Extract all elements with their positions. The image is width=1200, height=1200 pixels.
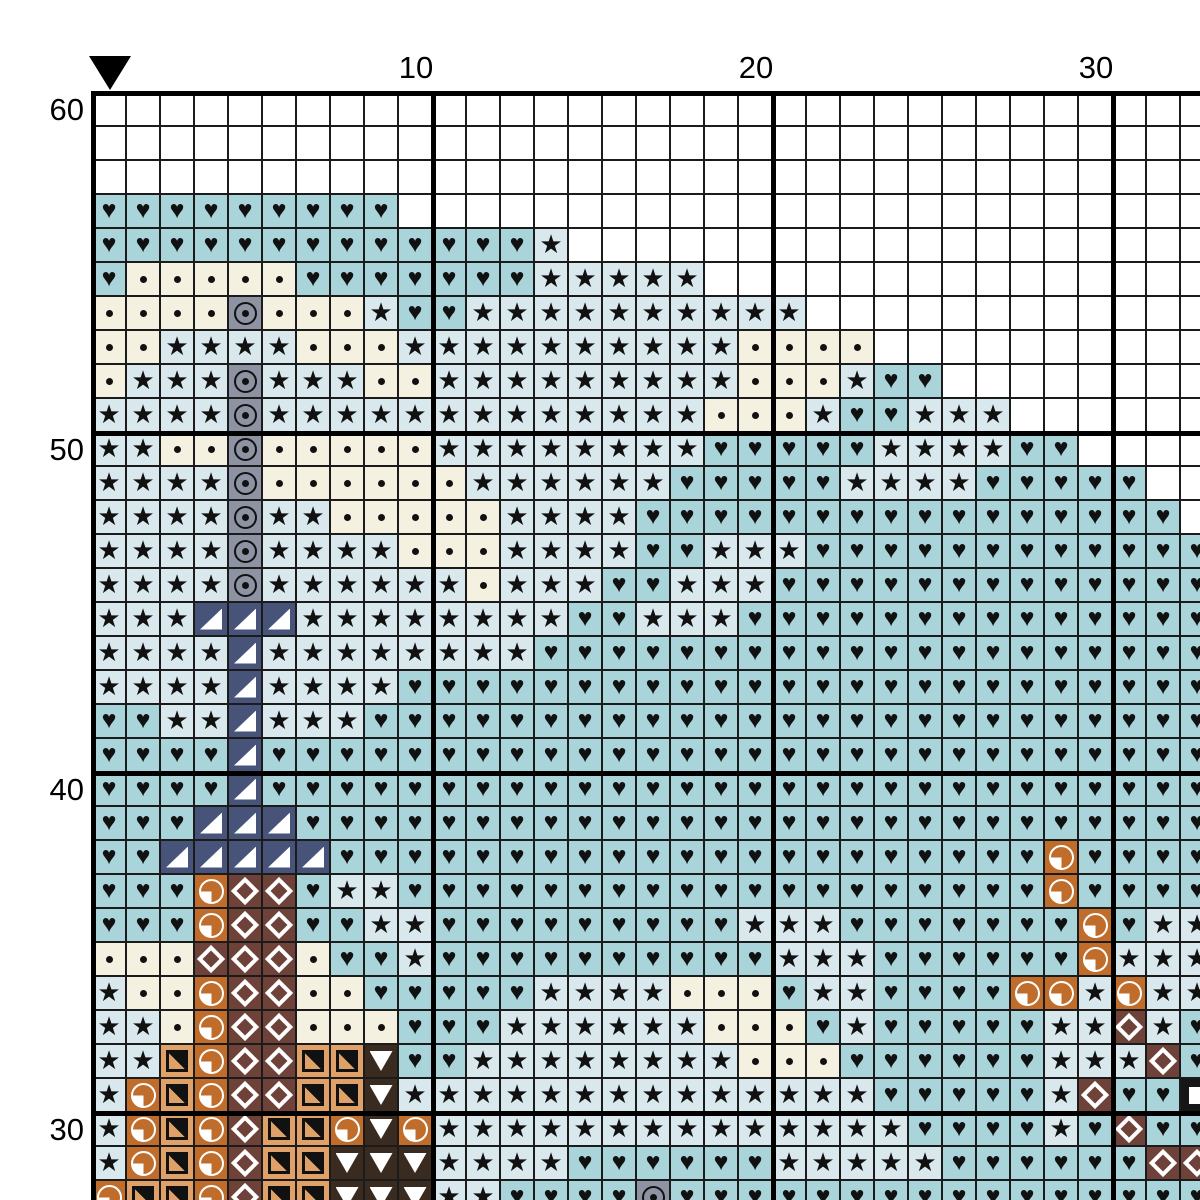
stitch-cell: ★	[943, 399, 977, 433]
heart-icon: ♥	[748, 1150, 763, 1175]
heart-icon: ♥	[612, 640, 627, 665]
stitch-cell: ♥	[569, 807, 603, 841]
dot-icon	[378, 378, 385, 385]
circled-dot-icon	[234, 438, 257, 461]
stitch-cell	[399, 365, 433, 399]
heart-icon: ♥	[782, 878, 797, 903]
stitch-cell: ♥	[637, 909, 671, 943]
dot-icon	[344, 446, 351, 453]
stitch-cell: ★	[161, 331, 195, 365]
stitch-cell: ♥	[1113, 773, 1147, 807]
stitch-cell: ♥	[705, 909, 739, 943]
star-icon: ★	[743, 1081, 766, 1107]
dot-icon	[174, 956, 181, 963]
stitch-cell	[1011, 263, 1045, 297]
stitch-cell: ★	[297, 705, 331, 739]
corner-triangle-icon	[200, 813, 222, 834]
stitch-cell: ★	[331, 399, 365, 433]
down-triangle-icon	[370, 1187, 393, 1200]
stitch-cell: ♥	[1181, 1181, 1200, 1200]
heart-icon: ♥	[476, 878, 491, 903]
dot-icon	[344, 344, 351, 351]
stitch-cell: ♥	[433, 909, 467, 943]
star-icon: ★	[845, 1081, 868, 1107]
heart-icon: ♥	[442, 946, 457, 971]
stitch-cell: ♥	[875, 637, 909, 671]
stitch-cell: ♥	[705, 1181, 739, 1200]
stitch-cell	[807, 161, 841, 195]
stitch-cell: ★	[705, 535, 739, 569]
stitch-cell: ♥	[399, 671, 433, 705]
stitch-cell: ★	[297, 569, 331, 603]
stitch-cell: ★	[535, 1011, 569, 1045]
stitch-cell	[195, 943, 229, 977]
star-icon: ★	[641, 367, 664, 393]
stitch-cell	[229, 637, 263, 671]
heart-icon: ♥	[816, 470, 831, 495]
stitch-cell: ♥	[875, 535, 909, 569]
quarter-circle-icon	[131, 1117, 156, 1142]
stitch-cell: ♥	[603, 909, 637, 943]
heart-icon: ♥	[952, 572, 967, 597]
stitch-cell: ♥	[739, 603, 773, 637]
stitch-cell: ♥	[467, 229, 501, 263]
heart-icon: ♥	[544, 708, 559, 733]
stitch-cell	[399, 501, 433, 535]
stitch-cell: ♥	[943, 807, 977, 841]
stitch-cell	[365, 127, 399, 161]
heart-icon: ♥	[782, 640, 797, 665]
heart-icon: ♥	[170, 912, 185, 937]
half-square-icon	[166, 1084, 188, 1106]
stitch-cell: ★	[909, 1147, 943, 1181]
heart-icon: ♥	[816, 606, 831, 631]
stitch-cell: ♥	[569, 1147, 603, 1181]
stitch-cell: ♥	[841, 705, 875, 739]
dot-icon	[820, 344, 827, 351]
stitch-cell	[1011, 229, 1045, 263]
star-icon: ★	[879, 469, 902, 495]
stitch-cell: ♥	[977, 637, 1011, 671]
stitch-cell: ♥	[841, 637, 875, 671]
stitch-cell	[1113, 365, 1147, 399]
stitch-cell	[501, 93, 535, 127]
heart-icon: ♥	[1020, 436, 1035, 461]
stitch-cell: ★	[127, 603, 161, 637]
heart-icon: ♥	[272, 198, 287, 223]
stitch-cell: ♥	[331, 943, 365, 977]
star-icon: ★	[369, 401, 392, 427]
heart-icon: ♥	[1156, 810, 1171, 835]
stitch-cell	[365, 1113, 399, 1147]
stitch-cell: ♥	[433, 841, 467, 875]
star-icon: ★	[403, 1081, 426, 1107]
stitch-cell: ♥	[1079, 875, 1113, 909]
heart-icon: ♥	[272, 742, 287, 767]
heart-icon: ♥	[918, 844, 933, 869]
heart-icon: ♥	[374, 742, 389, 767]
stitch-cell: ★	[195, 705, 229, 739]
stitch-cell	[1079, 909, 1113, 943]
star-icon: ★	[301, 537, 324, 563]
stitch-cell: ★	[263, 399, 297, 433]
stitch-cell: ★	[705, 603, 739, 637]
stitch-cell	[773, 263, 807, 297]
heart-icon: ♥	[374, 198, 389, 223]
star-icon: ★	[199, 537, 222, 563]
quarter-circle-icon	[1049, 879, 1074, 904]
stitch-cell	[1113, 127, 1147, 161]
stitch-cell: ♥	[603, 637, 637, 671]
dot-icon	[344, 514, 351, 521]
stitch-cell	[1045, 229, 1079, 263]
heart-icon: ♥	[408, 674, 423, 699]
heart-icon: ♥	[544, 810, 559, 835]
stitch-cell: ♥	[909, 671, 943, 705]
stitch-cell	[705, 977, 739, 1011]
stitch-cell: ★	[297, 399, 331, 433]
heart-icon: ♥	[782, 1184, 797, 1200]
stitch-cell: ★	[603, 977, 637, 1011]
stitch-cell: ♥	[399, 807, 433, 841]
stitch-cell: ★	[501, 331, 535, 365]
stitch-cell	[229, 603, 263, 637]
heart-icon: ♥	[1088, 1184, 1103, 1200]
heart-icon: ♥	[918, 504, 933, 529]
heart-icon: ♥	[612, 810, 627, 835]
star-icon: ★	[539, 1081, 562, 1107]
stitch-cell	[977, 161, 1011, 195]
stitch-cell	[739, 229, 773, 263]
heart-icon: ♥	[1122, 572, 1137, 597]
corner-triangle-icon	[268, 847, 290, 868]
corner-triangle-icon	[302, 847, 324, 868]
star-icon: ★	[1117, 945, 1140, 971]
stitch-cell: ♥	[943, 603, 977, 637]
corner-triangle-icon	[268, 813, 290, 834]
heart-icon: ♥	[102, 912, 117, 937]
stitch-cell	[875, 127, 909, 161]
stitch-cell: ♥	[1045, 467, 1079, 501]
heart-icon: ♥	[102, 810, 117, 835]
circled-dot-icon	[234, 506, 257, 529]
heart-icon: ♥	[952, 1082, 967, 1107]
stitch-cell: ★	[807, 909, 841, 943]
dot-icon	[174, 310, 181, 317]
stitch-cell	[739, 1045, 773, 1079]
stitch-cell: ♥	[1079, 705, 1113, 739]
heart-icon: ♥	[1088, 470, 1103, 495]
stitch-cell	[297, 841, 331, 875]
star-icon: ★	[539, 571, 562, 597]
stitch-cell: ★	[841, 1147, 875, 1181]
heart-icon: ♥	[340, 912, 355, 937]
stitch-cell: ★	[331, 637, 365, 671]
diamond-icon	[231, 945, 259, 973]
stitch-cell	[127, 331, 161, 365]
heart-icon: ♥	[510, 878, 525, 903]
star-icon: ★	[607, 1081, 630, 1107]
stitch-cell: ♥	[909, 773, 943, 807]
stitch-cell	[841, 195, 875, 229]
stitch-cell: ♥	[399, 875, 433, 909]
dot-icon	[276, 480, 283, 487]
stitch-cell: ♥	[1079, 501, 1113, 535]
star-icon: ★	[1151, 979, 1174, 1005]
heart-icon: ♥	[340, 232, 355, 257]
star-icon: ★	[913, 401, 936, 427]
stitch-cell: ★	[535, 399, 569, 433]
heart-icon: ♥	[986, 674, 1001, 699]
quarter-circle-icon	[199, 1185, 224, 1200]
stitch-cell: ♥	[467, 739, 501, 773]
stitch-cell	[705, 93, 739, 127]
stitch-cell	[195, 1079, 229, 1113]
heart-icon: ♥	[1190, 742, 1200, 767]
stitch-cell	[263, 1079, 297, 1113]
heart-icon: ♥	[102, 198, 117, 223]
heart-icon: ♥	[714, 504, 729, 529]
stitch-cell	[1045, 399, 1079, 433]
heart-icon: ♥	[952, 810, 967, 835]
stitch-cell: ★	[263, 365, 297, 399]
stitch-cell	[1181, 127, 1200, 161]
heart-icon: ♥	[884, 1048, 899, 1073]
stitch-cell: ♥	[1079, 569, 1113, 603]
stitch-cell: ♥	[773, 433, 807, 467]
stitch-cell	[603, 93, 637, 127]
heart-icon: ♥	[544, 640, 559, 665]
quarter-circle-icon	[1117, 981, 1142, 1006]
stitch-cell: ♥	[637, 501, 671, 535]
star-icon: ★	[335, 707, 358, 733]
stitch-cell: ★	[569, 1079, 603, 1113]
stitch-cell: ★	[1181, 977, 1200, 1011]
stitch-cell	[977, 93, 1011, 127]
stitch-cell	[1079, 297, 1113, 331]
star-icon: ★	[131, 673, 154, 699]
quarter-circle-icon	[1049, 981, 1074, 1006]
stitch-cell: ♥	[773, 875, 807, 909]
stitch-cell: ★	[433, 1147, 467, 1181]
stitch-cell: ★	[93, 1011, 127, 1045]
stitch-cell: ★	[93, 467, 127, 501]
dot-icon	[480, 582, 487, 589]
heart-icon: ♥	[1156, 1184, 1171, 1200]
stitch-cell	[569, 161, 603, 195]
stitch-cell	[195, 1181, 229, 1200]
heart-icon: ♥	[408, 1048, 423, 1073]
heart-icon: ♥	[884, 538, 899, 563]
stitch-cell	[229, 501, 263, 535]
heart-icon: ♥	[136, 198, 151, 223]
heart-icon: ♥	[884, 912, 899, 937]
stitch-cell: ★	[195, 535, 229, 569]
stitch-cell: ♥	[467, 909, 501, 943]
heart-icon: ♥	[918, 1048, 933, 1073]
stitch-cell: ★	[433, 365, 467, 399]
quarter-circle-icon	[199, 1049, 224, 1074]
stitch-cell: ★	[705, 1045, 739, 1079]
stitch-cell	[1011, 93, 1045, 127]
stitch-cell	[739, 263, 773, 297]
star-icon: ★	[403, 401, 426, 427]
heart-icon: ♥	[714, 912, 729, 937]
heart-icon: ♥	[408, 844, 423, 869]
star-icon: ★	[437, 367, 460, 393]
quarter-circle-icon	[199, 879, 224, 904]
heart-icon: ♥	[714, 470, 729, 495]
heart-icon: ♥	[1088, 606, 1103, 631]
heart-icon: ♥	[986, 708, 1001, 733]
stitch-cell: ♥	[739, 1181, 773, 1200]
stitch-cell: ★	[433, 603, 467, 637]
stitch-cell: ♥	[875, 1181, 909, 1200]
heart-icon: ♥	[1156, 538, 1171, 563]
stitch-cell: ♥	[705, 637, 739, 671]
stitch-cell: ♥	[807, 1181, 841, 1200]
heart-icon: ♥	[476, 946, 491, 971]
stitch-cell: ★	[127, 399, 161, 433]
stitch-cell: ★	[161, 365, 195, 399]
stitch-cell	[841, 229, 875, 263]
stitch-cell	[739, 977, 773, 1011]
stitch-cell: ♥	[943, 501, 977, 535]
stitch-cell: ★	[161, 399, 195, 433]
star-icon: ★	[777, 299, 800, 325]
heart-icon: ♥	[442, 674, 457, 699]
stitch-cell: ♥	[1045, 705, 1079, 739]
stitch-cell	[263, 1113, 297, 1147]
star-icon: ★	[641, 1013, 664, 1039]
heart-icon: ♥	[646, 776, 661, 801]
stitch-cell	[127, 977, 161, 1011]
star-icon: ★	[1185, 945, 1200, 971]
star-icon: ★	[505, 537, 528, 563]
star-icon: ★	[97, 503, 120, 529]
stitch-cell: ★	[93, 1045, 127, 1079]
stitch-cell	[909, 331, 943, 365]
heart-icon: ♥	[884, 844, 899, 869]
heart-icon: ♥	[476, 674, 491, 699]
heart-icon: ♥	[680, 708, 695, 733]
stitch-cell	[637, 93, 671, 127]
stitch-cell	[263, 977, 297, 1011]
dot-icon	[786, 1024, 793, 1031]
stitch-cell: ♥	[1011, 569, 1045, 603]
stitch-cell: ♥	[331, 739, 365, 773]
stitch-cell: ♥	[1113, 1181, 1147, 1200]
stitch-cell: ♥	[1045, 909, 1079, 943]
heart-icon: ♥	[408, 776, 423, 801]
star-icon: ★	[573, 299, 596, 325]
heart-icon: ♥	[918, 368, 933, 393]
stitch-cell	[127, 1147, 161, 1181]
heart-icon: ♥	[782, 844, 797, 869]
star-icon: ★	[505, 1149, 528, 1175]
stitch-cell: ♥	[501, 841, 535, 875]
heart-icon: ♥	[204, 742, 219, 767]
heart-icon: ♥	[918, 1184, 933, 1200]
heart-icon: ♥	[578, 810, 593, 835]
stitch-cell	[1147, 93, 1181, 127]
dot-icon	[344, 990, 351, 997]
stitch-cell: ★	[671, 331, 705, 365]
stitch-cell: ♥	[1147, 535, 1181, 569]
stitch-cell: ♥	[909, 909, 943, 943]
stitch-cell: ♥	[977, 807, 1011, 841]
quarter-circle-icon	[335, 1117, 360, 1142]
corner-triangle-icon	[234, 745, 256, 766]
heart-icon: ♥	[1190, 572, 1200, 597]
stitch-cell: ♥	[943, 1011, 977, 1045]
stitch-cell: ♥	[1079, 535, 1113, 569]
stitch-cell: ★	[195, 365, 229, 399]
stitch-cell: ♥	[977, 467, 1011, 501]
stitch-cell	[195, 297, 229, 331]
down-triangle-icon	[370, 1051, 393, 1071]
heart-icon: ♥	[1156, 1082, 1171, 1107]
stitch-cell: ★	[977, 433, 1011, 467]
heart-icon: ♥	[1122, 1184, 1137, 1200]
stitch-cell: ♥	[297, 263, 331, 297]
star-icon: ★	[573, 1047, 596, 1073]
heart-icon: ♥	[816, 1014, 831, 1039]
stitch-cell: ★	[399, 909, 433, 943]
stitch-cell: ♥	[127, 807, 161, 841]
star-icon: ★	[471, 1115, 494, 1141]
heart-icon: ♥	[170, 742, 185, 767]
stitch-cell: ★	[535, 603, 569, 637]
star-icon: ★	[199, 673, 222, 699]
heart-icon: ♥	[1054, 606, 1069, 631]
half-square-icon	[166, 1118, 188, 1140]
dot-icon	[718, 1024, 725, 1031]
heart-icon: ♥	[442, 878, 457, 903]
stitch-cell: ♥	[127, 739, 161, 773]
stitch-cell: ★	[433, 331, 467, 365]
stitch-cell: ★	[535, 1079, 569, 1113]
stitch-cell: ★	[93, 637, 127, 671]
star-icon: ★	[97, 605, 120, 631]
diamond-icon	[231, 911, 259, 939]
stitch-cell	[977, 127, 1011, 161]
stitch-cell: ♥	[1045, 603, 1079, 637]
star-icon: ★	[913, 435, 936, 461]
star-icon: ★	[641, 1081, 664, 1107]
circled-dot-icon	[234, 574, 257, 597]
star-icon: ★	[97, 469, 120, 495]
stitch-cell: ♥	[909, 365, 943, 399]
dot-icon	[106, 344, 113, 351]
heart-icon: ♥	[918, 742, 933, 767]
stitch-cell: ♥	[1011, 603, 1045, 637]
stitch-cell: ★	[501, 1045, 535, 1079]
stitch-cell: ♥	[1079, 1113, 1113, 1147]
star-icon: ★	[607, 1115, 630, 1141]
star-icon: ★	[437, 333, 460, 359]
heart-icon: ♥	[1190, 1014, 1200, 1039]
stitch-cell	[365, 161, 399, 195]
stitch-cell: ★	[365, 399, 399, 433]
stitch-cell	[1079, 1079, 1113, 1113]
stitch-cell	[331, 1045, 365, 1079]
stitch-cell: ★	[501, 1011, 535, 1045]
star-icon: ★	[573, 333, 596, 359]
star-icon: ★	[471, 1081, 494, 1107]
stitch-cell: ♥	[875, 773, 909, 807]
heart-icon: ♥	[1020, 504, 1035, 529]
